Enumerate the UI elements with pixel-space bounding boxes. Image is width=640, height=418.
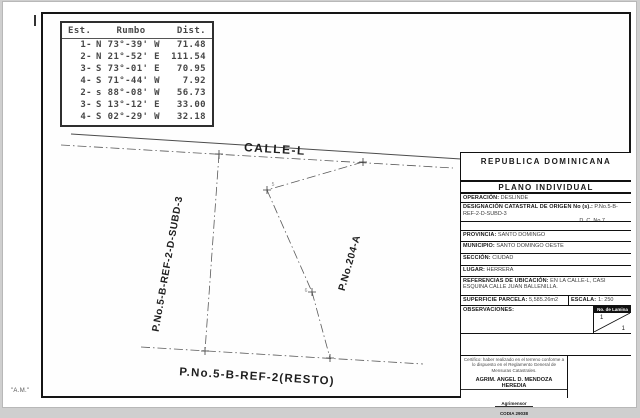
country-title: REPUBLICA DOMINICANA (461, 153, 631, 180)
margin-tick (34, 15, 36, 26)
superficie-label: SUPERFICIE PARCELA: (463, 297, 527, 303)
vertex-number: 6 (305, 288, 308, 294)
vertex-number: 5 (272, 182, 275, 188)
escala-value: 1: 250 (598, 297, 613, 304)
vertex-marks (201, 150, 367, 362)
certification-text: Certifico: haber realizado en el terreno… (461, 356, 567, 374)
surveyor-title: Agrimensor (495, 401, 532, 407)
field-observaciones-lamina: OBSERVACIONES: No. de Lamina 1 1 (461, 305, 631, 333)
field-escala: ESCALA: 1: 250 (568, 296, 631, 305)
escala-label: ESCALA: (571, 297, 596, 304)
referencias-label: REFERENCIAS DE UBICACIÓN: (463, 278, 549, 284)
seccion-value: CIUDAD (492, 255, 513, 261)
field-provincia: PROVINCIA: SANTO DOMINGO (461, 230, 631, 241)
lamina-box: 1 1 (594, 313, 631, 333)
provincia-label: PROVINCIA: (463, 232, 496, 238)
operacion-label: OPERACIÓN: (463, 195, 499, 201)
lamina-number-top: 1 (600, 315, 603, 321)
plan-sheet: "A.M." Est. Rumbo Dist. 1- N 73°-39' W 7… (2, 1, 637, 408)
field-operacion: OPERACIÓN: DESLINDE (461, 192, 631, 202)
designacion-label: DESIGNACIÓN CATASTRAL DE ORIGEN No (s).: (463, 204, 593, 210)
superficie-value: 5,585.26m2 (529, 297, 558, 303)
field-seccion: SECCIÓN: CIUDAD (461, 253, 631, 265)
field-municipio: MUNICIPIO: SANTO DOMINGO OESTE (461, 241, 631, 253)
lamina-cell: No. de Lamina 1 1 (593, 306, 631, 333)
lamina-number-bottom: 1 (622, 326, 625, 332)
municipio-value: SANTO DOMINGO OESTE (496, 243, 563, 249)
certification-row: Certifico: haber realizado en el terreno… (461, 355, 631, 398)
field-lugar: LUGAR: HERRERA (461, 265, 631, 276)
certification-cell: Certifico: haber realizado en el terreno… (461, 356, 568, 398)
field-observaciones: OBSERVACIONES: (461, 306, 593, 333)
observaciones-label: OBSERVACIONES: (463, 307, 514, 313)
operacion-value: DESLINDE (501, 195, 529, 201)
lamina-label: No. de Lamina (594, 306, 631, 313)
field-superficie-escala: SUPERFICIE PARCELA: 5,585.26m2 ESCALA: 1… (461, 295, 631, 305)
empty-row (461, 221, 631, 230)
plan-type-title: PLANO INDIVIDUAL (461, 180, 631, 192)
lugar-label: LUGAR: (463, 267, 485, 273)
lugar-value: HERRERA (487, 267, 514, 273)
corner-note: "A.M." (11, 388, 29, 394)
field-referencias: REFERENCIAS DE UBICACIÓN: EN LA CALLE-L,… (461, 276, 631, 296)
surveyor-name: AGRIM. ANGEL D. MENDOZA HEREDIA (461, 377, 567, 390)
surveyor-signature-block: AGRIM. ANGEL D. MENDOZA HEREDIA Agrimens… (461, 374, 567, 418)
empty-row (461, 333, 631, 355)
provincia-value: SANTO DOMINGO (498, 232, 545, 238)
municipio-label: MUNICIPIO: (463, 243, 495, 249)
field-designacion: DESIGNACIÓN CATASTRAL DE ORIGEN No (s).:… (461, 202, 631, 221)
title-block: REPUBLICA DOMINICANA PLANO INDIVIDUAL OP… (460, 152, 631, 398)
empty-cell (568, 356, 631, 398)
seccion-label: SECCIÓN: (463, 255, 491, 261)
surveyor-codia: CODIA 29038 (461, 411, 567, 416)
field-superficie: SUPERFICIE PARCELA: 5,585.26m2 (461, 296, 568, 305)
